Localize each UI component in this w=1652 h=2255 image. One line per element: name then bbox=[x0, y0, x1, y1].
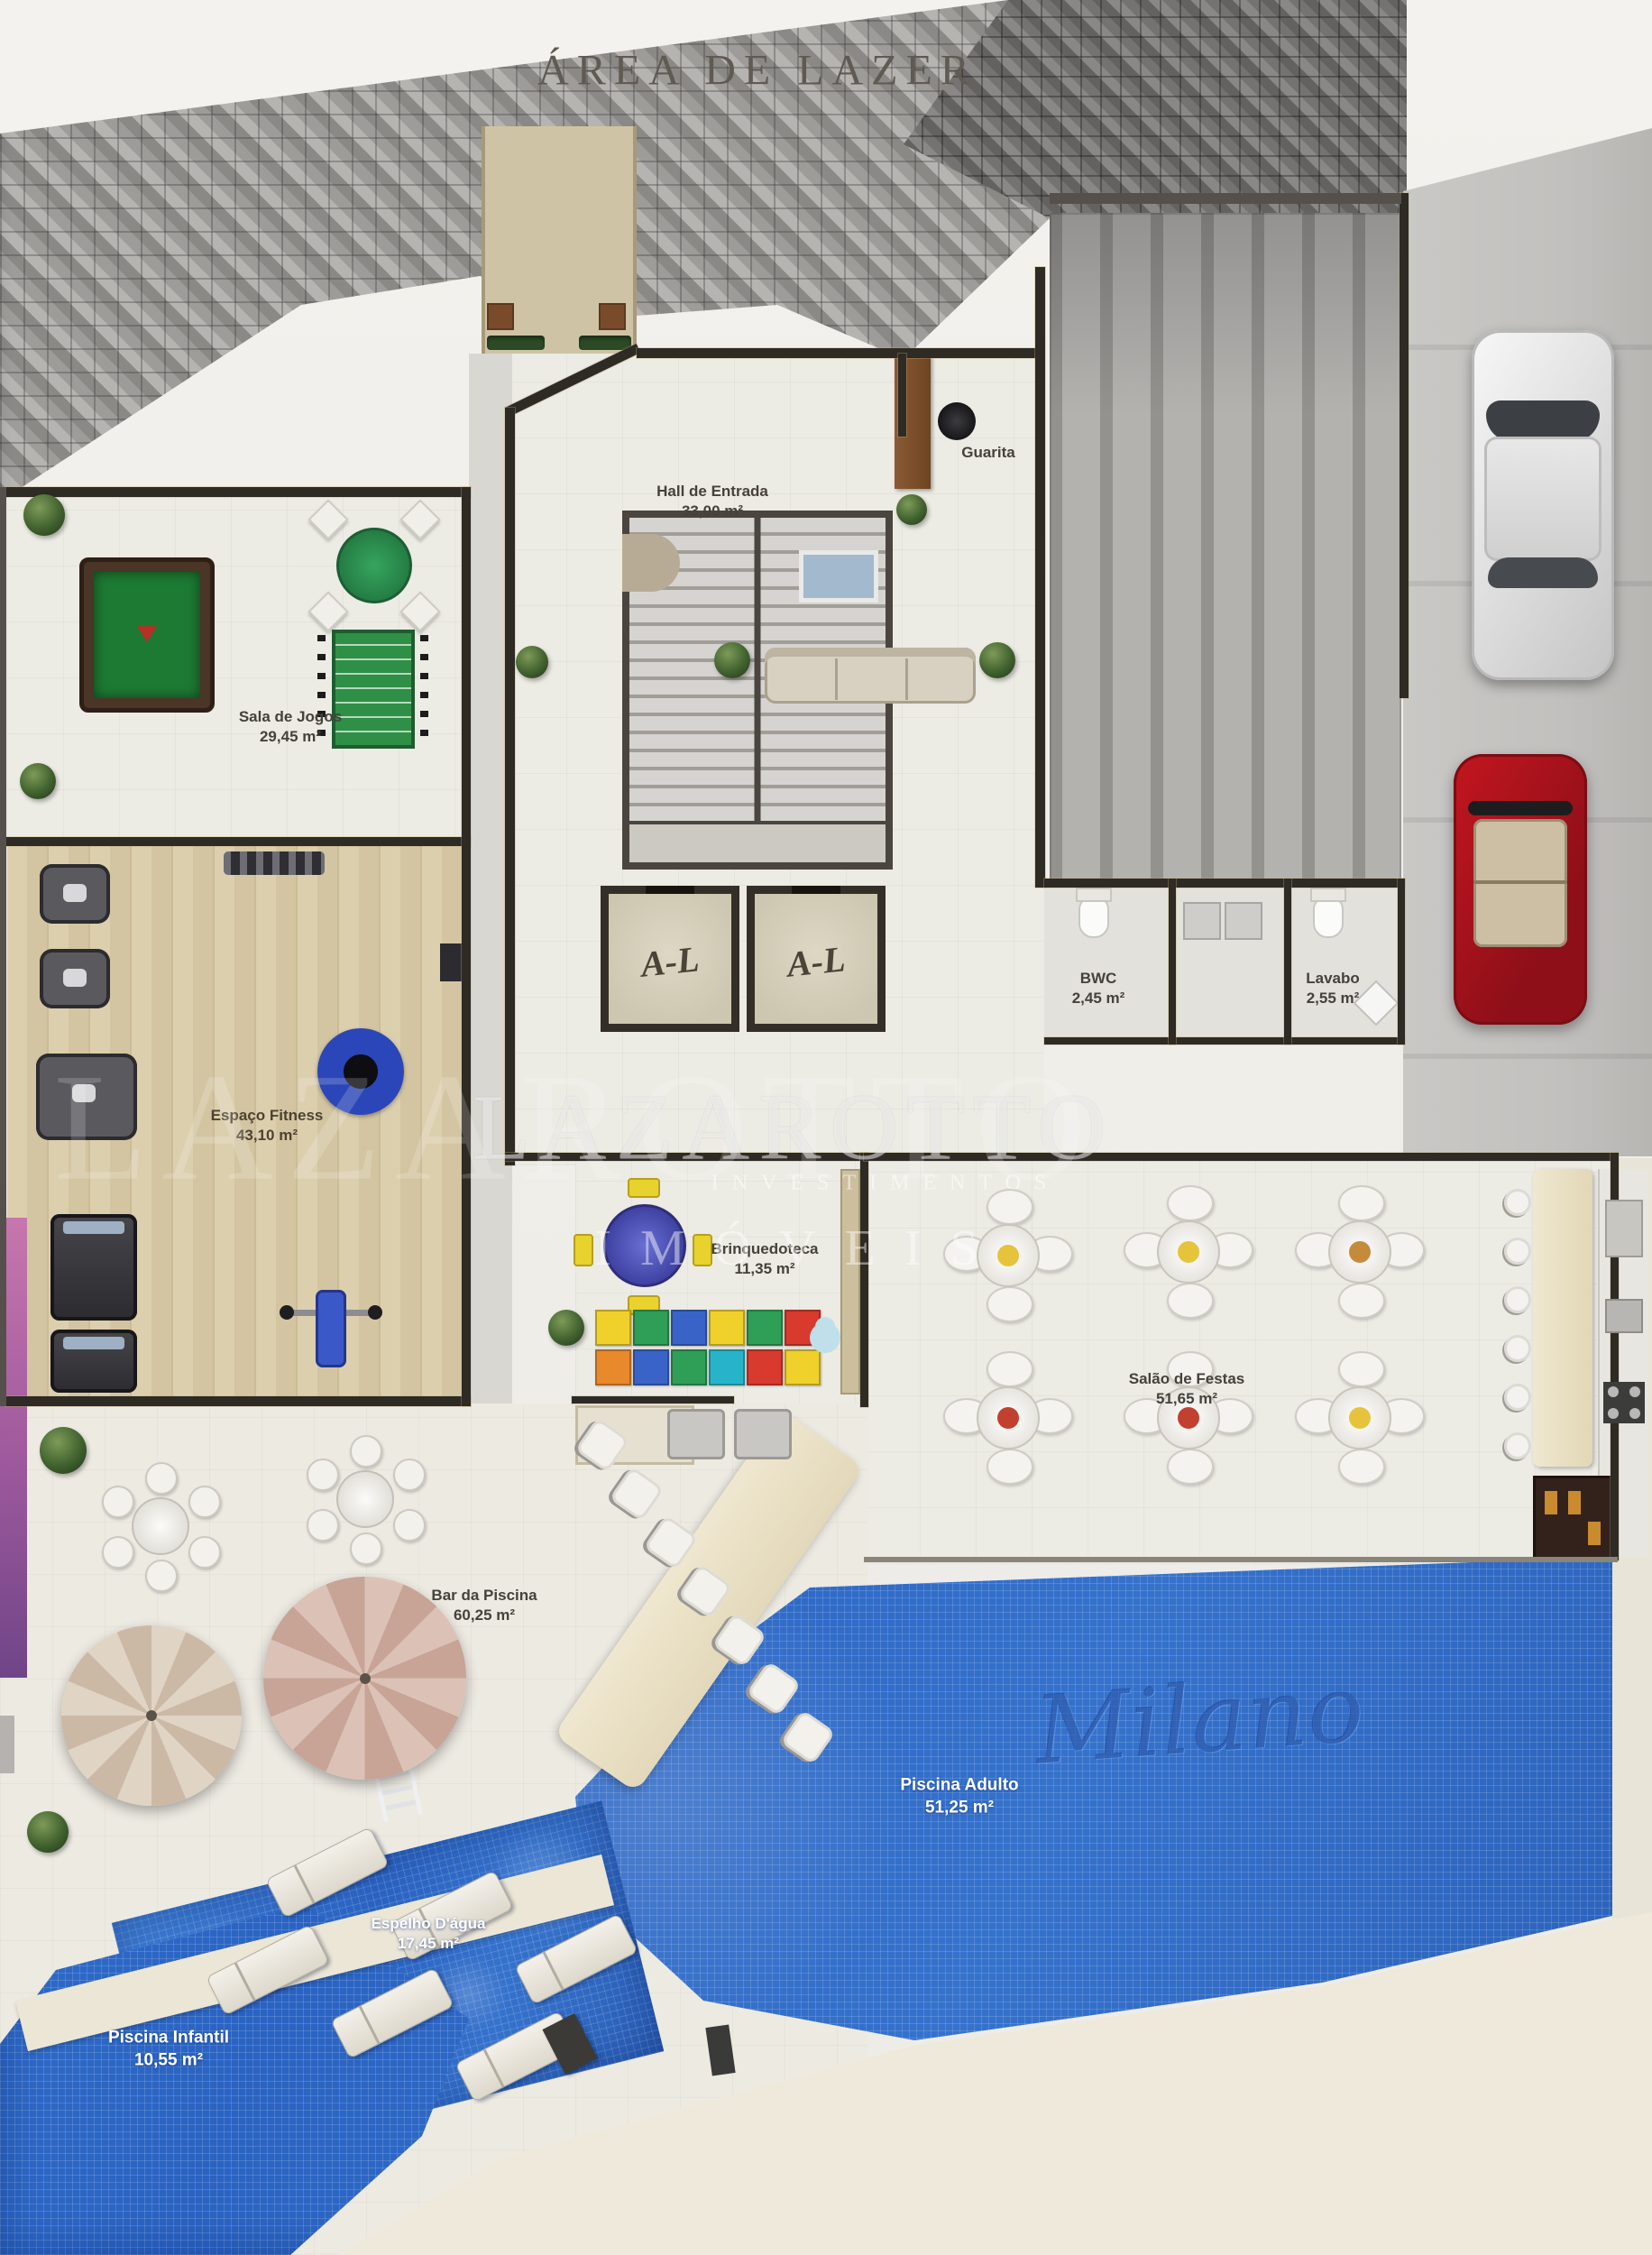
room-label-guarita: Guarita bbox=[961, 443, 1015, 463]
weight-plate bbox=[368, 1305, 382, 1320]
hopscotch-tile bbox=[671, 1349, 707, 1385]
burner bbox=[1608, 1408, 1619, 1419]
hopscotch-tile bbox=[671, 1310, 707, 1346]
floor-plan-canvas: A-L A-L bbox=[0, 0, 1652, 2255]
kitchen-sink bbox=[1605, 1299, 1643, 1333]
terrace-table bbox=[93, 1459, 228, 1594]
table-top bbox=[336, 1470, 394, 1528]
room-label-brinquedoteca: Brinquedoteca 11,35 m² bbox=[711, 1239, 818, 1279]
sofa-cushion-divider bbox=[905, 658, 908, 700]
wall bbox=[1044, 879, 1405, 888]
entry-hedge bbox=[579, 336, 631, 350]
teddy-bear-toy bbox=[810, 1322, 840, 1353]
room-label-espelho-dagua: Espelho D'água 17,45 m² bbox=[372, 1914, 486, 1954]
hopscotch-tile bbox=[595, 1349, 631, 1385]
chair bbox=[393, 1459, 426, 1491]
office-chair bbox=[938, 402, 976, 440]
wall bbox=[1400, 193, 1409, 698]
burner bbox=[1629, 1408, 1640, 1419]
bar-stool bbox=[1504, 1335, 1531, 1362]
kids-chair bbox=[693, 1234, 712, 1266]
kids-chair bbox=[628, 1178, 660, 1198]
game-room-table bbox=[307, 498, 442, 633]
car-roof bbox=[1484, 437, 1602, 561]
car-windshield bbox=[1468, 801, 1573, 815]
party-table bbox=[936, 1346, 1080, 1490]
bar-stool bbox=[1504, 1238, 1531, 1265]
party-table bbox=[1288, 1180, 1432, 1324]
garage-ramp bbox=[1050, 213, 1401, 882]
wall bbox=[462, 487, 471, 1406]
treadmill-console bbox=[63, 1337, 124, 1349]
exercise-bike bbox=[40, 949, 110, 1008]
chair bbox=[307, 591, 348, 631]
room-label-salao-de-festas: Salão de Festas 51,65 m² bbox=[1129, 1369, 1245, 1409]
entry-planter bbox=[599, 303, 626, 330]
party-table bbox=[1116, 1346, 1261, 1490]
treadmill bbox=[50, 1330, 137, 1393]
hopscotch-tile bbox=[709, 1349, 745, 1385]
chair bbox=[307, 1459, 339, 1491]
stair-divider bbox=[755, 518, 761, 862]
entry-hedge bbox=[487, 336, 545, 350]
bike-seat bbox=[72, 1084, 96, 1102]
room-label-piscina-adulto: Piscina Adulto 51,25 m² bbox=[900, 1774, 1018, 1818]
wall bbox=[637, 348, 1044, 358]
chair bbox=[350, 1435, 382, 1468]
bottle bbox=[1545, 1491, 1557, 1514]
treadmill bbox=[50, 1214, 137, 1321]
room-label-espaco-fitness: Espaço Fitness 43,10 m² bbox=[211, 1106, 324, 1146]
washbasin bbox=[1183, 902, 1221, 940]
plant bbox=[979, 642, 1015, 678]
hopscotch-tile bbox=[709, 1310, 745, 1346]
room-label-hall-de-entrada: Hall de Entrada 33,00 m² bbox=[656, 482, 768, 521]
chair bbox=[987, 1351, 1033, 1387]
wall bbox=[1398, 879, 1405, 1045]
elevator-door bbox=[792, 886, 840, 894]
wall-unit bbox=[440, 943, 463, 981]
wall bbox=[5, 487, 471, 497]
table-top bbox=[336, 528, 412, 603]
chair bbox=[399, 499, 440, 539]
bar-stool bbox=[1504, 1286, 1531, 1313]
bike-seat bbox=[63, 969, 87, 987]
lobby-sofa bbox=[765, 648, 976, 704]
toilet-tank bbox=[1310, 888, 1346, 902]
wall bbox=[1044, 1037, 1405, 1045]
table-top bbox=[132, 1497, 189, 1555]
recumbent-bike bbox=[36, 1054, 137, 1140]
kettlebell-rug bbox=[317, 1028, 404, 1115]
wall bbox=[572, 1396, 734, 1404]
room-label-lavabo: Lavabo 2,55 m² bbox=[1306, 969, 1360, 1008]
party-table bbox=[936, 1183, 1080, 1328]
chair bbox=[1167, 1185, 1214, 1221]
kids-table bbox=[603, 1204, 686, 1287]
chair bbox=[399, 591, 440, 631]
edge-bench bbox=[0, 1716, 14, 1773]
plant bbox=[516, 646, 548, 678]
kids-chair bbox=[574, 1234, 593, 1266]
chair bbox=[188, 1536, 221, 1569]
chair bbox=[350, 1532, 382, 1565]
red-convertible bbox=[1454, 754, 1587, 1025]
hopscotch-tile bbox=[747, 1310, 783, 1346]
chair bbox=[307, 499, 348, 539]
bottle bbox=[1588, 1522, 1601, 1545]
terrace-table bbox=[298, 1431, 433, 1567]
wine-cabinet bbox=[1533, 1476, 1612, 1562]
wall bbox=[5, 837, 471, 846]
chair bbox=[1338, 1351, 1385, 1387]
chair bbox=[393, 1509, 426, 1542]
elevator-door bbox=[646, 886, 694, 894]
hopscotch-tile bbox=[633, 1349, 669, 1385]
room-label-bar-da-piscina: Bar da Piscina 60,25 m² bbox=[431, 1586, 537, 1625]
bar-stool bbox=[1504, 1432, 1531, 1459]
wall bbox=[898, 354, 906, 437]
bar-stool bbox=[1504, 1189, 1531, 1216]
wall bbox=[1035, 267, 1045, 888]
wall bbox=[5, 1396, 471, 1406]
toilet-icon bbox=[1313, 897, 1344, 938]
hopscotch-tile bbox=[633, 1310, 669, 1346]
room-label-bwc: BWC 2,45 m² bbox=[1072, 969, 1125, 1008]
wall bbox=[1050, 193, 1401, 204]
bar-stool bbox=[1504, 1384, 1531, 1411]
stove-icon bbox=[1603, 1382, 1645, 1423]
wall bbox=[0, 487, 6, 1406]
entry-mat bbox=[799, 550, 878, 603]
chair bbox=[307, 1509, 339, 1542]
page-title: ÁREA DE LAZER bbox=[537, 46, 977, 96]
chair bbox=[1167, 1283, 1214, 1319]
pool-coping bbox=[864, 1557, 1618, 1562]
dumbbell-rack bbox=[224, 851, 325, 875]
hopscotch-tile bbox=[747, 1349, 783, 1385]
weight-plate bbox=[280, 1305, 294, 1320]
billiards-rack-triangle bbox=[137, 626, 157, 642]
table-centerpiece bbox=[1349, 1407, 1371, 1429]
bottle bbox=[1568, 1491, 1581, 1514]
elevator-2: A-L bbox=[747, 886, 886, 1032]
foosball-table bbox=[332, 630, 415, 749]
wall bbox=[864, 1153, 1618, 1161]
chair bbox=[1167, 1449, 1214, 1485]
washbasin bbox=[1225, 902, 1262, 940]
wall bbox=[1284, 879, 1291, 1045]
burner bbox=[1629, 1386, 1640, 1397]
bike-seat bbox=[63, 884, 87, 902]
plant bbox=[896, 494, 927, 525]
plant bbox=[23, 494, 65, 536]
weight-bench bbox=[316, 1290, 346, 1367]
party-table bbox=[1116, 1180, 1261, 1324]
wall bbox=[505, 1153, 867, 1161]
parasol bbox=[61, 1625, 242, 1806]
plant bbox=[27, 1811, 69, 1853]
elevator-logo: A-L bbox=[785, 937, 848, 985]
prep-sink bbox=[734, 1409, 792, 1459]
stair-landing bbox=[629, 821, 886, 862]
chair bbox=[188, 1486, 221, 1518]
plant bbox=[714, 642, 750, 678]
plant bbox=[548, 1310, 584, 1346]
toilet-icon bbox=[1078, 897, 1109, 938]
foosball-rods bbox=[420, 630, 428, 749]
wall bbox=[860, 1153, 868, 1407]
table-centerpiece bbox=[1349, 1241, 1371, 1263]
treadmill-console bbox=[63, 1221, 124, 1234]
wall bbox=[505, 408, 515, 1165]
console-table bbox=[622, 534, 680, 592]
hopscotch-tile bbox=[785, 1349, 821, 1385]
chair bbox=[1338, 1185, 1385, 1221]
hopscotch-tile bbox=[595, 1310, 631, 1346]
wall bbox=[1169, 879, 1176, 1045]
burner bbox=[1608, 1386, 1619, 1397]
sofa-cushion-divider bbox=[835, 658, 838, 700]
chair bbox=[102, 1536, 134, 1569]
white-car bbox=[1472, 330, 1614, 680]
toy-shelf bbox=[840, 1169, 860, 1394]
chair bbox=[145, 1462, 178, 1495]
car-seat-divider bbox=[1473, 880, 1567, 884]
prep-sink bbox=[667, 1409, 725, 1459]
plant bbox=[20, 763, 56, 799]
elevator-1: A-L bbox=[601, 886, 739, 1032]
car-rear-window bbox=[1488, 557, 1598, 588]
entry-planter bbox=[487, 303, 514, 330]
plant bbox=[40, 1427, 87, 1474]
table-centerpiece bbox=[1178, 1241, 1199, 1263]
elevator-logo: A-L bbox=[639, 937, 702, 985]
toilet-tank bbox=[1076, 888, 1112, 902]
chair bbox=[987, 1286, 1033, 1322]
refrigerator bbox=[1605, 1200, 1643, 1257]
chair bbox=[102, 1486, 134, 1518]
exercise-bike bbox=[40, 864, 110, 924]
table-centerpiece bbox=[997, 1245, 1019, 1266]
table-centerpiece bbox=[997, 1407, 1019, 1429]
chair bbox=[987, 1449, 1033, 1485]
room-label-sala-de-jogos: Sala de Jogos 29,45 m² bbox=[239, 707, 342, 747]
table-centerpiece bbox=[1178, 1407, 1199, 1429]
chair bbox=[145, 1560, 178, 1592]
chair bbox=[1338, 1283, 1385, 1319]
party-bar-counter bbox=[1533, 1169, 1592, 1467]
room-label-piscina-infantil: Piscina Infantil 10,55 m² bbox=[108, 2027, 229, 2071]
billiards-table bbox=[79, 557, 215, 713]
chair bbox=[1338, 1449, 1385, 1485]
party-table bbox=[1288, 1346, 1432, 1490]
chair bbox=[987, 1189, 1033, 1225]
